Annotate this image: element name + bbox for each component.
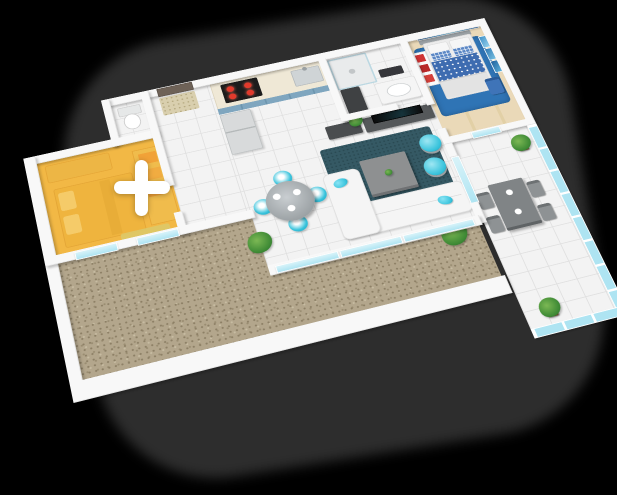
plus-icon: [135, 160, 148, 216]
toilet: [117, 104, 144, 131]
cup: [505, 189, 514, 196]
table-plant: [384, 168, 394, 176]
plate: [292, 188, 302, 196]
plate: [287, 204, 297, 212]
fridge-divider: [226, 126, 256, 134]
burner: [226, 86, 235, 93]
apartment-plan: [15, 14, 617, 461]
floorplan-scene: [0, 0, 617, 475]
shower-drain: [348, 68, 356, 74]
selected-room-plus-button[interactable]: [114, 160, 170, 216]
burner: [243, 82, 252, 89]
burner: [228, 93, 237, 100]
cup: [514, 208, 523, 215]
burner: [246, 89, 255, 96]
vanity-basin: [385, 81, 414, 98]
plate: [272, 193, 282, 201]
faucet: [301, 67, 307, 72]
